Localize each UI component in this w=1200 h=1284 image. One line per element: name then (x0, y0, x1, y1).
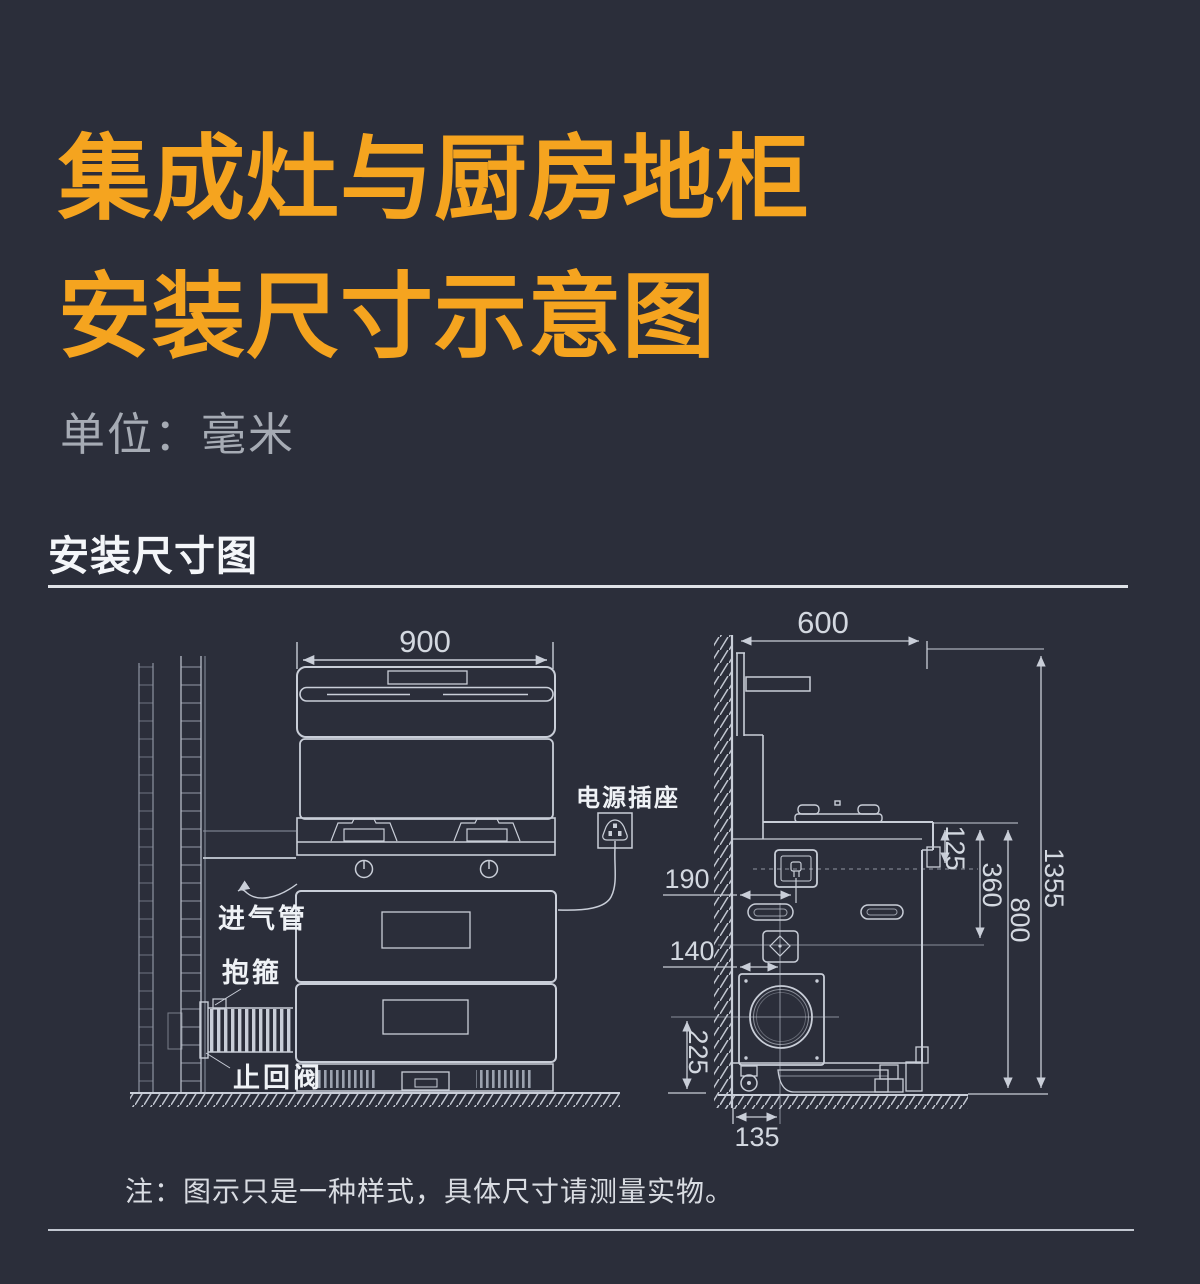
svg-text:190: 190 (664, 864, 709, 894)
corrugated-hose (208, 1008, 293, 1052)
control-knob-left (356, 861, 373, 878)
display-panel (388, 671, 467, 684)
drawer-1 (296, 891, 556, 982)
clamp-leader (215, 989, 241, 1005)
clamp-label: 抱箍 (222, 957, 282, 988)
foot (880, 1065, 898, 1079)
svg-text:135: 135 (734, 1122, 779, 1152)
vent-handle-right (861, 905, 903, 919)
base-side (733, 1047, 928, 1092)
drip-tray (778, 1070, 888, 1092)
pan-support-left (331, 819, 397, 841)
vent-handle-left (748, 904, 793, 920)
burner-side (795, 801, 882, 822)
glass-panel (300, 739, 553, 819)
check-valve-label: 止回阀 (233, 1063, 323, 1093)
dim-1355: 1355 (1039, 656, 1069, 1088)
svg-text:125: 125 (940, 825, 970, 870)
dim-front-width: 900 (297, 624, 553, 669)
svg-text:360: 360 (977, 862, 1007, 907)
dim-360: 360 (977, 830, 1007, 938)
dim-800: 800 (1005, 830, 1035, 1088)
dim-135: 135 (733, 1108, 780, 1152)
flue-column-right (181, 656, 205, 1093)
pan-support-right (454, 819, 520, 841)
plinth (297, 1064, 553, 1094)
installation-diagram: 900 (0, 0, 1200, 1284)
svg-text:600: 600 (797, 605, 849, 640)
dim-125: 125 (940, 825, 970, 870)
wall-section (714, 635, 732, 1108)
power-socket-label: 电源插座 (576, 784, 680, 812)
svg-text:1355: 1355 (1039, 848, 1069, 908)
fan-outlet (739, 974, 824, 1065)
stove-hood (297, 667, 555, 737)
hood-side (736, 653, 810, 839)
side-view: 600 125 360 800 1355 19 (663, 605, 1069, 1152)
check-valve-leader (206, 1053, 230, 1068)
caster-wheel (741, 1066, 757, 1091)
gas-inlet-hose (238, 884, 297, 898)
ground-side (718, 1094, 1048, 1109)
dim-900-label: 900 (399, 624, 451, 659)
control-knob-right (481, 861, 498, 878)
countertop-side (733, 822, 940, 1063)
front-view: 900 (130, 624, 680, 1107)
left-countertop (203, 831, 296, 858)
end-bracket (906, 1062, 922, 1091)
cooktop (297, 818, 555, 855)
svg-text:225: 225 (683, 1029, 713, 1074)
vent-slot (300, 688, 553, 702)
dim-600: 600 (741, 605, 1044, 669)
ground-front (130, 1093, 620, 1107)
hidden-duct-box (168, 1013, 182, 1049)
power-cord (558, 841, 615, 910)
gas-inlet-pipe-label: 进气管 (218, 904, 308, 934)
drawer-2 (296, 984, 556, 1062)
svg-text:140: 140 (669, 936, 714, 966)
flue-column-left (139, 663, 153, 1093)
dim-225: 225 (668, 1021, 713, 1093)
svg-text:800: 800 (1005, 897, 1035, 942)
